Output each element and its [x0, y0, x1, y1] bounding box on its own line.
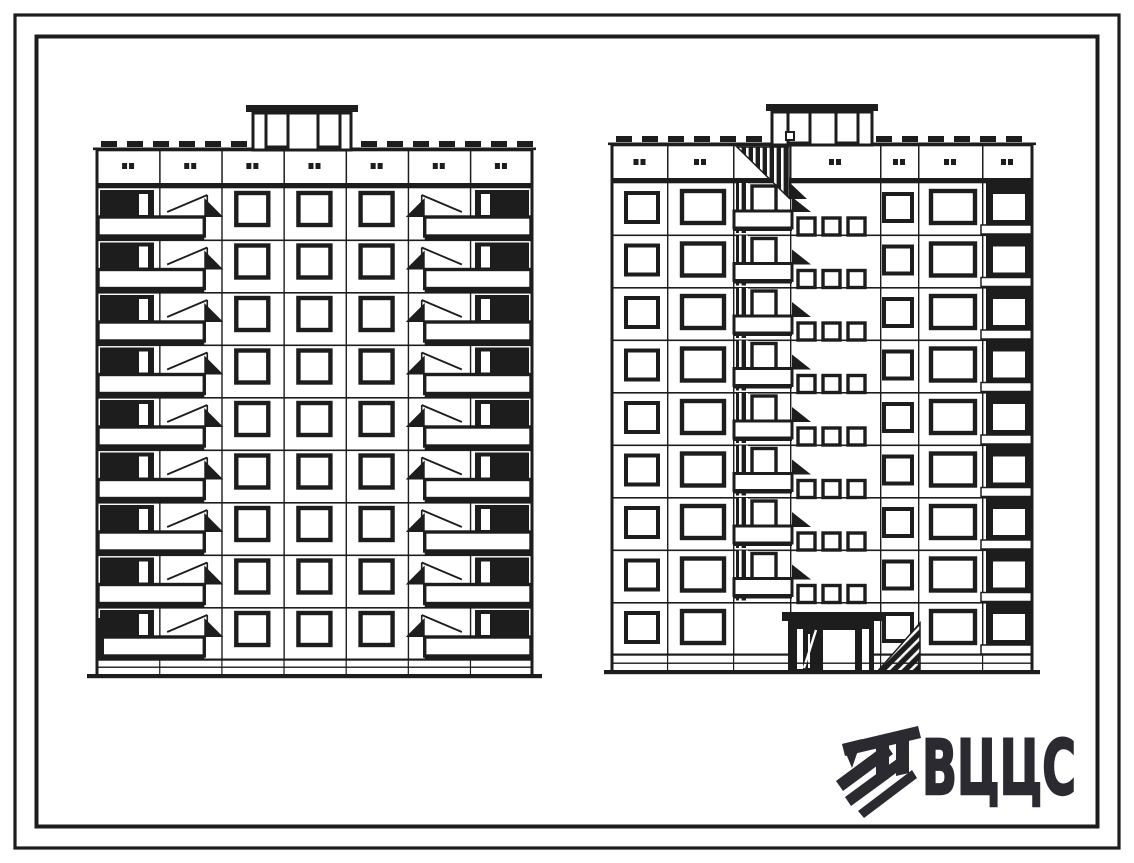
machine-room-roof-slab — [246, 105, 358, 112]
stair-window — [823, 428, 840, 445]
loggia-slab — [981, 488, 1032, 497]
elevation-right-facade — [604, 104, 1040, 680]
window — [931, 244, 975, 276]
window — [361, 613, 393, 645]
stair-window — [848, 428, 865, 445]
balcony-slab — [98, 322, 204, 341]
balcony-slab — [425, 480, 531, 499]
window — [931, 401, 975, 433]
stair-window — [823, 533, 840, 550]
roof-edge-dash — [517, 141, 533, 147]
stair-window — [848, 323, 865, 340]
loggia-door — [752, 186, 776, 212]
entrance-canopy — [782, 612, 882, 621]
loggia-slab — [981, 645, 1032, 654]
drawing-canvas: ВЦЦС — [0, 0, 1134, 863]
panel-joint — [408, 187, 409, 660]
stair-window — [848, 533, 865, 550]
roof-edge-dash — [153, 141, 169, 147]
window — [298, 246, 330, 278]
panel-joint — [346, 187, 347, 660]
balcony-slab — [98, 585, 204, 604]
balcony-slab — [425, 375, 531, 394]
floor-line — [97, 607, 532, 609]
loggia-slab — [981, 593, 1032, 602]
parapet-panel-mark — [836, 159, 841, 165]
parapet-panel-mark — [433, 163, 438, 169]
window — [361, 456, 393, 488]
parapet-panel-mark — [694, 159, 699, 165]
window — [298, 403, 330, 435]
parapet-band — [612, 145, 1032, 182]
elevation-left-facade — [87, 105, 542, 680]
stair-window — [848, 218, 865, 235]
roof-edge-dash — [231, 141, 247, 147]
loggia-window — [993, 404, 1025, 430]
window — [682, 191, 724, 223]
parapet-panel-mark — [246, 163, 251, 169]
stair-window — [798, 218, 815, 235]
roof-edge-dash — [642, 136, 658, 142]
parapet-panel-mark — [1008, 159, 1013, 165]
window — [884, 247, 912, 274]
parapet-panel-mark — [641, 159, 646, 165]
machine-room-door — [836, 112, 858, 143]
drawing-sheet: ВЦЦС — [0, 0, 1134, 863]
window — [682, 506, 724, 538]
loggia-door — [752, 291, 776, 317]
logo-text: ВЦЦС — [922, 723, 1076, 812]
window — [884, 299, 912, 326]
parapet-panel-mark — [634, 159, 639, 165]
roof-edge-dash — [720, 136, 736, 142]
window — [236, 561, 268, 593]
window — [361, 351, 393, 383]
loggia-window — [993, 247, 1025, 273]
window — [626, 613, 658, 642]
window — [931, 349, 975, 381]
loggia-slab — [734, 579, 792, 596]
roof-edge-dash — [1006, 136, 1022, 142]
floor-line — [97, 240, 532, 242]
roof-edge-dash — [179, 141, 195, 147]
stair-window — [848, 481, 865, 498]
window — [361, 403, 393, 435]
roof-edge-dash — [746, 136, 762, 142]
floor-line — [97, 397, 532, 399]
window — [626, 403, 658, 432]
floor-line — [97, 450, 532, 452]
parapet-panel-mark — [502, 163, 507, 169]
balcony-slab — [98, 375, 204, 394]
window — [236, 351, 268, 383]
parapet-shadow — [612, 178, 1032, 182]
parapet-panel-mark — [122, 163, 127, 169]
parapet-panel-mark — [951, 159, 956, 165]
roof-edge-dash — [928, 136, 944, 142]
window — [682, 611, 724, 643]
loggia-window — [993, 194, 1025, 220]
loggia-door — [752, 239, 776, 265]
stair-window — [848, 586, 865, 603]
parapet-panel-mark — [495, 163, 500, 169]
parapet-panel-mark — [184, 163, 189, 169]
panel-joint — [982, 182, 983, 655]
stair-window — [848, 271, 865, 288]
window — [682, 296, 724, 328]
floor-line — [97, 345, 532, 347]
window — [682, 454, 724, 486]
window — [682, 401, 724, 433]
loggia-window — [993, 614, 1025, 640]
roof-edge-dash — [127, 141, 143, 147]
window — [626, 456, 658, 485]
parapet-panel-mark — [309, 163, 314, 169]
stair-window — [823, 323, 840, 340]
loggia-slab — [981, 540, 1032, 549]
machine-room-vent — [786, 132, 794, 140]
window — [361, 508, 393, 540]
window — [626, 193, 658, 222]
window — [298, 508, 330, 540]
window — [361, 298, 393, 330]
logo-emblem-icon — [836, 726, 921, 818]
window — [931, 506, 975, 538]
stair-window — [823, 218, 840, 235]
roof-edge-dash — [902, 136, 918, 142]
window — [626, 246, 658, 275]
window — [298, 561, 330, 593]
panel-joint — [283, 187, 284, 660]
roof-edge-dash — [413, 141, 429, 147]
stair-window — [798, 533, 815, 550]
loggia-slab — [981, 225, 1032, 234]
parapet-panel-mark — [316, 163, 321, 169]
window — [682, 349, 724, 381]
balcony-slab — [98, 270, 204, 289]
ground-line — [604, 670, 1040, 674]
parapet-panel-mark — [944, 159, 949, 165]
parapet-band — [97, 150, 532, 187]
window — [931, 454, 975, 486]
roof-edge-dash — [491, 141, 507, 147]
floor-line — [97, 292, 532, 294]
balcony-slab — [98, 637, 204, 656]
loggia-slab — [734, 316, 792, 333]
stair-window — [848, 376, 865, 393]
balcony-slab — [425, 217, 531, 236]
loggia-slab — [981, 278, 1032, 287]
window — [236, 193, 268, 225]
window — [236, 508, 268, 540]
window — [298, 351, 330, 383]
parapet-shadow — [97, 183, 532, 188]
window — [884, 457, 912, 484]
loggia-window — [993, 509, 1025, 535]
window — [361, 246, 393, 278]
stair-window — [823, 481, 840, 498]
roof-edge-dash — [668, 136, 684, 142]
loggia-door — [752, 554, 776, 580]
window — [626, 508, 658, 537]
window — [361, 561, 393, 593]
ground-line — [87, 674, 542, 678]
balcony-slab — [425, 322, 531, 341]
window — [884, 404, 912, 431]
loggia-slab — [734, 264, 792, 281]
parapet-panel-mark — [440, 163, 445, 169]
stair-window — [798, 323, 815, 340]
window — [236, 403, 268, 435]
window — [931, 296, 975, 328]
window — [626, 298, 658, 327]
loggia-door — [752, 501, 776, 527]
roof-edge-dash — [876, 136, 892, 142]
balcony-slab — [425, 270, 531, 289]
roof-edge-dash — [694, 136, 710, 142]
roof-edge-dash — [439, 141, 455, 147]
window — [236, 298, 268, 330]
roof-edge-dash — [616, 136, 632, 142]
window — [931, 611, 975, 643]
window — [931, 191, 975, 223]
loggia-slab — [734, 369, 792, 386]
window — [236, 246, 268, 278]
parapet-panel-mark — [1001, 159, 1006, 165]
roof-edge-dash — [205, 141, 221, 147]
roof-edge-dash — [980, 136, 996, 142]
parapet-panel-mark — [191, 163, 196, 169]
window — [298, 456, 330, 488]
window — [361, 193, 393, 225]
loggia-door — [752, 344, 776, 370]
roof-edge-dash — [361, 141, 377, 147]
window — [682, 559, 724, 591]
stair-window — [798, 271, 815, 288]
window — [931, 559, 975, 591]
window — [884, 194, 912, 221]
parapet-panel-mark — [253, 163, 258, 169]
roof-edge-dash — [465, 141, 481, 147]
machine-room-door — [266, 113, 288, 147]
roof-edge-dash — [954, 136, 970, 142]
panel-joint — [918, 182, 919, 655]
balcony-slab — [98, 480, 204, 499]
window — [236, 456, 268, 488]
panel-joint — [880, 182, 881, 655]
stair-window — [823, 376, 840, 393]
floor-line — [97, 502, 532, 504]
window — [682, 244, 724, 276]
balcony-slab — [425, 427, 531, 446]
window — [298, 298, 330, 330]
window — [236, 613, 268, 645]
loggia-window — [993, 299, 1025, 325]
parapet-panel-mark — [371, 163, 376, 169]
roof-edge-dash — [101, 141, 117, 147]
balcony-slab — [98, 427, 204, 446]
loggia-slab — [981, 383, 1032, 392]
balcony-slab — [425, 532, 531, 551]
stair-window — [798, 376, 815, 393]
balcony-slab — [98, 532, 204, 551]
parapet-panel-mark — [378, 163, 383, 169]
loggia-slab — [734, 211, 792, 228]
parapet-panel-mark — [129, 163, 134, 169]
machine-room-door — [318, 113, 340, 147]
loggia-slab — [734, 421, 792, 438]
roof-edge-dash — [387, 141, 403, 147]
entrance-door — [822, 629, 856, 672]
loggia-door — [752, 396, 776, 422]
panel-joint — [667, 182, 668, 655]
stair-window — [798, 586, 815, 603]
machine-room-roof-slab — [766, 104, 878, 111]
stair-window — [823, 271, 840, 288]
parapet-panel-mark — [900, 159, 905, 165]
parapet-panel-mark — [893, 159, 898, 165]
balcony-slab — [98, 217, 204, 236]
window — [884, 509, 912, 536]
loggia-slab — [981, 330, 1032, 339]
parapet-panel-mark — [701, 159, 706, 165]
loggia-window — [993, 457, 1025, 483]
loggia-door — [752, 449, 776, 475]
loggia-slab — [981, 435, 1032, 444]
window — [626, 561, 658, 590]
stair-window — [823, 586, 840, 603]
balcony-slab — [425, 585, 531, 604]
loggia-slab — [734, 474, 792, 491]
parapet-panel-mark — [829, 159, 834, 165]
window — [298, 613, 330, 645]
panel-joint — [221, 187, 222, 660]
balcony-slab — [425, 637, 531, 656]
window — [626, 351, 658, 380]
floor-line — [97, 555, 532, 557]
stair-window — [798, 481, 815, 498]
window — [884, 352, 912, 379]
loggia-window — [993, 562, 1025, 588]
stair-window — [798, 428, 815, 445]
loggia-window — [993, 352, 1025, 378]
window — [298, 193, 330, 225]
publisher-logo: ВЦЦС — [836, 723, 1076, 818]
loggia-slab — [734, 526, 792, 543]
window — [884, 562, 912, 589]
